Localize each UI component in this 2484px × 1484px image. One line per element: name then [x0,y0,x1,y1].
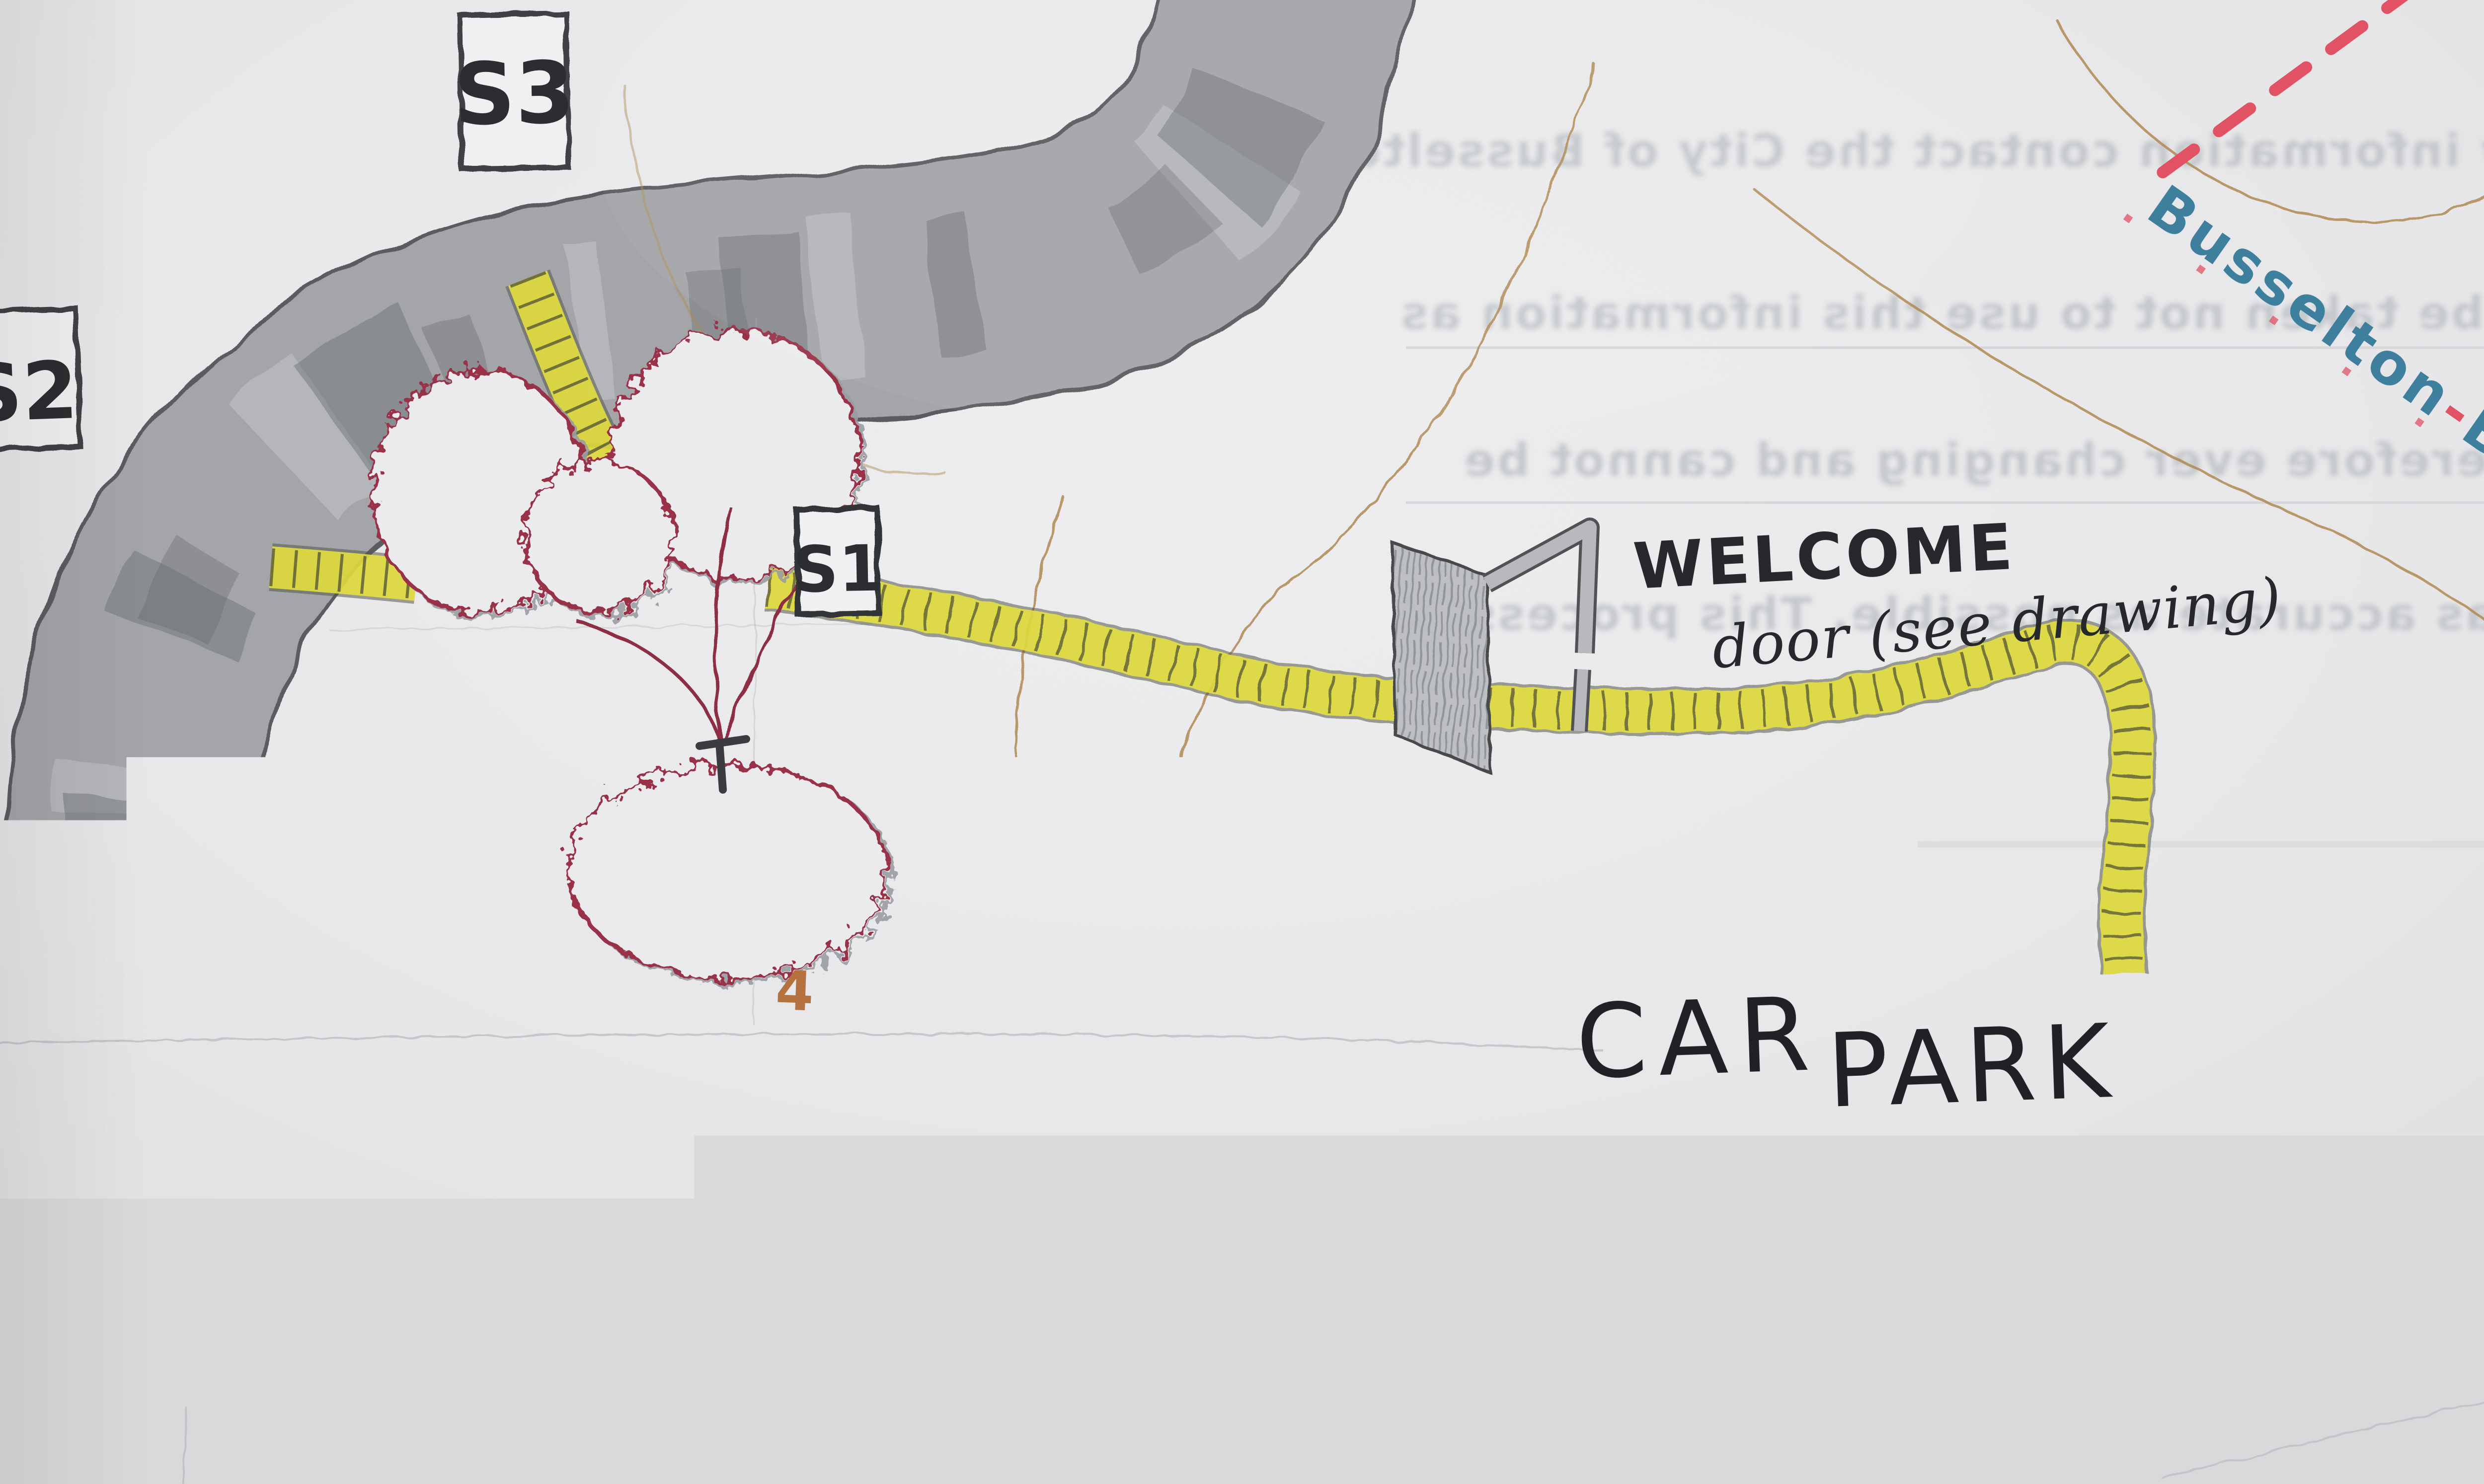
bleed-line-3: is therefore ever changing and cannot be [1462,434,2484,487]
door-leaf [1392,542,1490,772]
station-box-s3: S3 [453,13,576,169]
car-park-word-park: PARK [1825,1003,2119,1131]
trail-segment-west [271,567,416,580]
station-label-s1: S1 [792,531,883,607]
door-frame-foot [1579,669,1583,731]
station-box-s1: S1 [792,508,884,614]
plot-number-text: 4 [775,959,815,1024]
car-park-word-car: CAR [1574,975,1822,1102]
left-shadow [0,0,149,1484]
station-label-s3: S3 [453,43,576,145]
site-map-sketch: verify information contact the City of B… [0,0,2484,1484]
